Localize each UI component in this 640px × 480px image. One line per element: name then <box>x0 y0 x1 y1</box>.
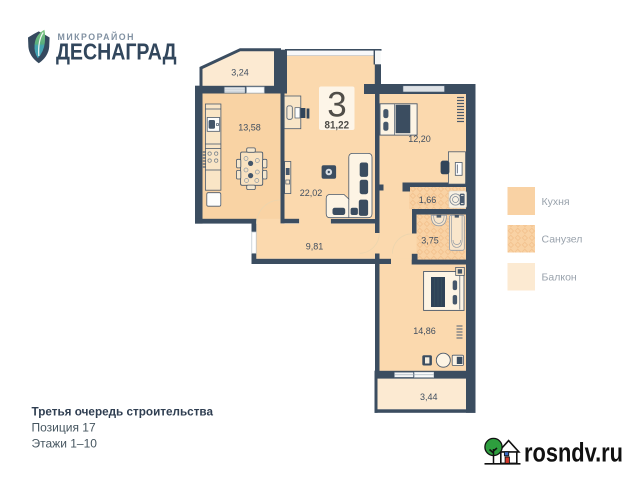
svg-text:3,24: 3,24 <box>231 68 249 78</box>
svg-text:Этажи 1–10: Этажи 1–10 <box>32 436 98 450</box>
svg-text:9,81: 9,81 <box>306 242 324 252</box>
svg-text:13,58: 13,58 <box>238 123 261 133</box>
svg-text:ДЕСНАГРАД: ДЕСНАГРАД <box>56 38 177 64</box>
svg-text:22,02: 22,02 <box>300 188 323 198</box>
svg-text:rosndv.ru: rosndv.ru <box>524 438 623 468</box>
svg-text:3,44: 3,44 <box>420 392 438 402</box>
svg-text:12,20: 12,20 <box>408 134 431 144</box>
svg-text:Кухня: Кухня <box>542 196 570 208</box>
svg-text:Позиция 17: Позиция 17 <box>32 420 96 434</box>
svg-text:1,66: 1,66 <box>419 195 437 205</box>
svg-text:14,86: 14,86 <box>413 326 436 336</box>
svg-text:3,75: 3,75 <box>421 236 439 246</box>
svg-text:Третья очередь строительства: Третья очередь строительства <box>32 405 214 419</box>
svg-text:Балкон: Балкон <box>542 271 577 283</box>
svg-text:81,22: 81,22 <box>325 119 350 131</box>
svg-text:Санузел: Санузел <box>542 233 583 245</box>
